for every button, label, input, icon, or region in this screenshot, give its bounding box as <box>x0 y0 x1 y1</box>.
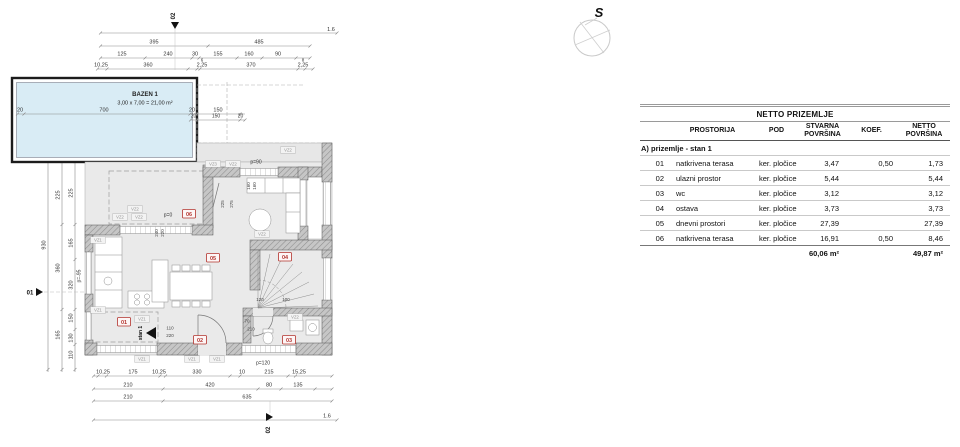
svg-text:VZ1: VZ1 <box>188 357 196 362</box>
vz-tag: VZ2 <box>128 206 143 212</box>
room-number: 01 <box>640 159 672 168</box>
floor-type: ker. pločice <box>753 219 800 228</box>
wc-door-gap <box>253 308 273 316</box>
svg-text:VZ3: VZ3 <box>209 162 217 167</box>
room-marker-01: 01 <box>118 318 131 327</box>
svg-text:2,25: 2,25 <box>197 63 208 69</box>
svg-text:01: 01 <box>121 320 127 326</box>
net-area: 8,46 <box>898 234 950 243</box>
svg-text:15,25: 15,25 <box>292 370 306 376</box>
svg-text:240: 240 <box>163 52 172 58</box>
svg-text:225: 225 <box>220 200 225 208</box>
svg-text:100: 100 <box>282 297 290 302</box>
room-number: 05 <box>640 219 672 228</box>
svg-text:240: 240 <box>154 229 159 237</box>
svg-text:110: 110 <box>166 326 174 331</box>
room-name: ostava <box>672 204 753 213</box>
level-p120: p=120 <box>256 361 270 367</box>
actual-area: 3,12 <box>800 189 845 198</box>
total-net-area: 49,87 m² <box>898 249 950 258</box>
header-prostorija: PROSTORIJA <box>672 127 753 135</box>
svg-text:330: 330 <box>192 370 201 376</box>
svg-text:01: 01 <box>27 291 34 297</box>
header-koef: KOEF. <box>845 127 898 135</box>
actual-area: 16,91 <box>800 234 845 243</box>
room-marker-04: 04 <box>279 253 292 262</box>
floor-type: ker. pločice <box>753 234 800 243</box>
svg-text:VZ2: VZ2 <box>284 148 292 153</box>
washing-machine <box>306 320 319 335</box>
net-area: 1,73 <box>898 159 950 168</box>
svg-text:04: 04 <box>282 255 289 261</box>
svg-text:VZ2: VZ2 <box>229 162 237 167</box>
svg-text:06: 06 <box>186 212 192 218</box>
svg-text:1.6: 1.6 <box>323 414 331 420</box>
table-row: 05 dnevni prostori ker. pločice 27,39 27… <box>640 216 950 231</box>
svg-text:160: 160 <box>252 182 257 190</box>
table-row: 03 wc ker. pločice 3,12 3,12 <box>640 186 950 201</box>
net-area: 27,39 <box>898 219 950 228</box>
floor-plan-drawing: 1.6 395 485 125 240 30 155 160 90 10,25 … <box>0 0 640 447</box>
svg-text:215: 215 <box>264 370 273 376</box>
section-marker-top: 02 <box>171 12 179 29</box>
level-p90: p=90 <box>250 160 261 166</box>
svg-text:VZ2: VZ2 <box>116 215 124 220</box>
svg-text:10,25: 10,25 <box>152 370 166 376</box>
entry-door-gap <box>198 343 226 355</box>
vz-tag: VZ3 <box>206 161 221 167</box>
svg-text:360: 360 <box>56 263 62 272</box>
header-stvarna-povrsina: STVARNA POVRŠINA <box>800 123 845 139</box>
svg-text:175: 175 <box>128 370 137 376</box>
svg-text:160: 160 <box>244 52 253 58</box>
room-name: dnevni prostori <box>672 219 753 228</box>
bottom-dimension-labels: 10,25 175 10,25 330 10 215 15,25 210 420… <box>96 370 331 420</box>
svg-text:10: 10 <box>239 370 245 376</box>
svg-text:2,25: 2,25 <box>298 63 309 69</box>
svg-text:70: 70 <box>244 319 250 324</box>
svg-text:02: 02 <box>266 426 272 433</box>
room-name: ulazni prostor <box>672 174 753 183</box>
svg-text:110: 110 <box>69 351 75 360</box>
room-number: 04 <box>640 204 672 213</box>
total-actual-area: 60,06 m² <box>800 249 845 258</box>
svg-text:80: 80 <box>266 383 272 389</box>
svg-text:165: 165 <box>56 330 62 339</box>
svg-text:stan 1: stan 1 <box>138 326 144 341</box>
svg-text:90: 90 <box>275 52 281 58</box>
svg-text:225: 225 <box>69 188 75 197</box>
svg-text:700: 700 <box>99 108 108 114</box>
architectural-sheet: 1.6 395 485 125 240 30 155 160 90 10,25 … <box>0 0 960 447</box>
toilet <box>263 329 273 344</box>
floor-type: ker. pločice <box>753 159 800 168</box>
svg-text:275: 275 <box>229 200 234 208</box>
svg-text:220: 220 <box>166 333 174 338</box>
net-area: 3,73 <box>898 204 950 213</box>
svg-text:20: 20 <box>238 114 244 120</box>
svg-text:30: 30 <box>192 52 198 58</box>
svg-text:VZ2: VZ2 <box>258 232 266 237</box>
svg-text:VZ1: VZ1 <box>138 317 146 322</box>
table-row: 06 natkrivena terasa ker. pločice 16,91 … <box>640 231 950 246</box>
floor-type: ker. pločice <box>753 189 800 198</box>
room-number: 02 <box>640 174 672 183</box>
svg-text:20: 20 <box>191 114 197 120</box>
coefficient: 0,50 <box>845 159 898 168</box>
svg-text:395: 395 <box>149 40 158 46</box>
svg-text:150: 150 <box>69 313 75 322</box>
svg-text:03: 03 <box>286 338 292 344</box>
room-marker-06: 06 <box>183 210 196 219</box>
svg-text:120: 120 <box>256 297 264 302</box>
room-marker-02: 02 <box>194 336 207 345</box>
svg-text:485: 485 <box>254 40 263 46</box>
svg-text:VZ2: VZ2 <box>291 315 299 320</box>
svg-text:02: 02 <box>197 338 203 344</box>
vz-tag: VZ1 <box>91 307 106 313</box>
vz-tag: VZ1 <box>135 316 150 322</box>
north-label: S <box>595 5 604 20</box>
svg-text:VZ1: VZ1 <box>138 357 146 362</box>
svg-text:210: 210 <box>123 383 132 389</box>
room-marker-03: 03 <box>283 336 296 345</box>
floor-type: ker. pločice <box>753 204 800 213</box>
svg-text:225: 225 <box>56 190 62 199</box>
vz-tag: VZ2 <box>132 214 147 220</box>
svg-text:320: 320 <box>69 280 75 289</box>
compass: S <box>574 5 610 56</box>
vz-tag: VZ1 <box>185 356 200 362</box>
svg-text:370: 370 <box>246 63 255 69</box>
net-area: 3,12 <box>898 189 950 198</box>
vz-tag: VZ2 <box>113 214 128 220</box>
room-name: wc <box>672 189 753 198</box>
header-pod: POD <box>753 127 800 135</box>
section-marker-left: 01 <box>27 288 43 297</box>
svg-text:10,25: 10,25 <box>96 370 110 376</box>
svg-text:VZ1: VZ1 <box>94 308 102 313</box>
coffee-table <box>249 209 271 231</box>
vz-tag: VZ2 <box>226 161 241 167</box>
room-number: 03 <box>640 189 672 198</box>
room-name: natkrivena terasa <box>672 159 753 168</box>
vz-tag: VZ1 <box>135 356 150 362</box>
svg-text:420: 420 <box>205 383 214 389</box>
svg-text:165: 165 <box>69 238 75 247</box>
svg-text:210: 210 <box>247 327 255 332</box>
svg-text:VZ1: VZ1 <box>213 357 221 362</box>
table-row: 02 ulazni prostor ker. pločice 5,44 5,44 <box>640 171 950 186</box>
svg-text:360: 360 <box>143 63 152 69</box>
table-totals-row: 60,06 m² 49,87 m² <box>640 246 950 260</box>
pool-size: 3,00 x 7,00 = 21,00 m² <box>117 101 172 107</box>
svg-text:160: 160 <box>246 182 251 190</box>
svg-text:02: 02 <box>171 12 177 19</box>
svg-text:125: 125 <box>117 52 126 58</box>
area-summary-table: NETTO PRIZEMLJE PROSTORIJA POD STVARNA P… <box>640 104 950 260</box>
actual-area: 27,39 <box>800 219 845 228</box>
net-area: 5,44 <box>898 174 950 183</box>
svg-text:135: 135 <box>293 383 302 389</box>
table-title: NETTO PRIZEMLJE <box>640 107 950 122</box>
svg-text:20: 20 <box>17 108 23 114</box>
level-pm95: p=-95 <box>77 269 83 282</box>
actual-area: 3,47 <box>800 159 845 168</box>
vz-tag: VZ1 <box>210 356 225 362</box>
svg-text:130: 130 <box>69 333 75 342</box>
coefficient: 0,50 <box>845 234 898 243</box>
table-row: 04 ostava ker. pločice 3,73 3,73 <box>640 201 950 216</box>
svg-text:155: 155 <box>213 52 222 58</box>
table-row: 01 natkrivena terasa ker. pločice 3,47 0… <box>640 156 950 171</box>
actual-area: 3,73 <box>800 204 845 213</box>
bathroom-sink <box>290 320 303 331</box>
kitchen-island <box>152 260 168 302</box>
actual-area: 5,44 <box>800 174 845 183</box>
vz-tag: VZ1 <box>91 237 106 243</box>
room-name: natkrivena terasa <box>672 234 753 243</box>
vz-tag: VZ2 <box>288 314 303 320</box>
svg-text:635: 635 <box>242 395 251 401</box>
svg-text:220: 220 <box>160 229 165 237</box>
room-marker-05: 05 <box>207 254 220 263</box>
vz-tag: VZ2 <box>281 147 296 153</box>
level-p0: p=0 <box>164 213 173 219</box>
floor-type: ker. pločice <box>753 174 800 183</box>
svg-text:10,25: 10,25 <box>94 63 108 69</box>
svg-text:150: 150 <box>212 114 221 120</box>
vz-tag: VZ2 <box>255 231 270 237</box>
svg-text:05: 05 <box>210 256 216 262</box>
svg-text:VZ2: VZ2 <box>131 207 139 212</box>
svg-text:VZ1: VZ1 <box>94 238 102 243</box>
svg-text:210: 210 <box>123 395 132 401</box>
table-header-row: PROSTORIJA POD STVARNA POVRŠINA KOEF. NE… <box>640 122 950 141</box>
table-section-label: A) prizemlje - stan 1 <box>640 141 950 156</box>
kitchen-sink <box>104 277 112 285</box>
svg-text:930: 930 <box>42 240 48 249</box>
pool-name: BAZEN 1 <box>132 92 158 98</box>
svg-text:VZ2: VZ2 <box>135 215 143 220</box>
svg-text:1.6: 1.6 <box>327 27 335 33</box>
section-marker-bottom: 02 <box>266 413 273 433</box>
room-number: 06 <box>640 234 672 243</box>
header-netto-povrsina: NETTO POVRŠINA <box>898 123 950 139</box>
